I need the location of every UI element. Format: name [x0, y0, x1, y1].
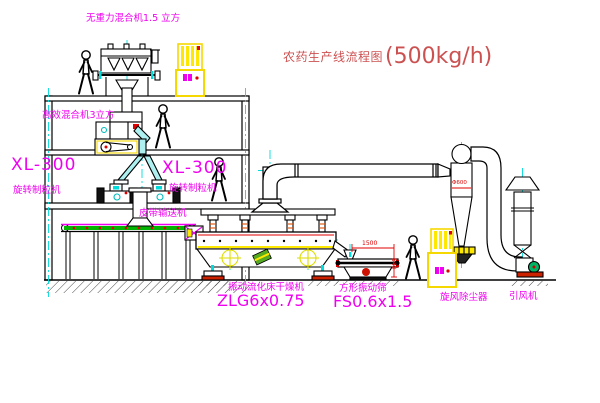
- label-high-efficiency-mixer: 高效混合机3立方: [42, 111, 115, 121]
- dimension-sieve-height: 540: [390, 258, 396, 269]
- stack-rain-cap: [506, 177, 539, 190]
- fluid-bed-dryer: [185, 209, 349, 280]
- label-granulator-left-name: 旋转制粒机: [13, 186, 61, 196]
- title-capacity: (500kg/h): [385, 44, 492, 69]
- title-text: 农药生产线流程图: [283, 48, 383, 65]
- label-dryer-model: ZLG6x0.75: [217, 293, 305, 309]
- fan-base: [517, 272, 543, 277]
- label-granulator-left-model: XL-300: [11, 157, 76, 174]
- person-figure: [406, 236, 420, 279]
- control-cabinet-top: [176, 44, 204, 96]
- control-cabinet-fan: [428, 229, 456, 287]
- dimension-cyclone-diameter: Φ600: [452, 181, 467, 187]
- belt-band: [64, 226, 193, 230]
- induced-draft-fan: [516, 258, 543, 277]
- exhaust-duct: [252, 164, 450, 212]
- belt-conveyor: [61, 225, 196, 280]
- person-figure: [79, 51, 93, 94]
- exhaust-stack: [506, 177, 539, 258]
- gravity-free-mixer: [93, 44, 160, 116]
- suspension-hangers: [208, 215, 327, 232]
- duct-reducer: [438, 164, 450, 177]
- label-granulator-right-name: 旋转制粒机: [169, 184, 217, 194]
- label-sieve-model: FS0.6x1.5: [333, 294, 412, 310]
- pesticide-production-line-diagram: 农药生产线流程图 (500kg/h) 无重力混合机1.5 立方 高效混合机3立方…: [0, 0, 600, 403]
- label-granulator-right-model: XL-300: [162, 160, 227, 177]
- label-gravity-free-mixer: 无重力混合机1.5 立方: [86, 14, 180, 24]
- diagram-title: 农药生产线流程图 (500kg/h): [283, 44, 492, 69]
- dimension-sieve-width: 1500: [362, 241, 377, 247]
- label-belt-conveyor: 皮带输送机: [139, 209, 187, 219]
- y-feed-pipe: [114, 156, 166, 184]
- label-fan: 引风机: [509, 292, 538, 302]
- person-figure: [156, 105, 170, 148]
- label-cyclone: 旋风除尘器: [440, 293, 488, 303]
- vibration-motor: [362, 268, 370, 276]
